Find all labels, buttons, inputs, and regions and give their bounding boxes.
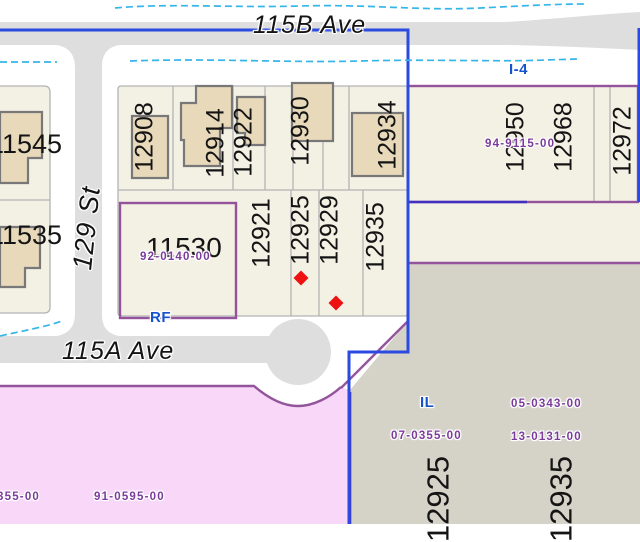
road-cul-de-sac-bulb bbox=[265, 319, 331, 385]
parcel-label-12921: 12921 bbox=[250, 198, 275, 268]
zone-label-rf: RF bbox=[150, 310, 171, 325]
permit-label-05-0343-00: 05-0343-00 bbox=[511, 399, 582, 411]
parcel-label-12972: 12972 bbox=[611, 106, 636, 176]
parcel-label-12925-industrial: 12925 bbox=[423, 456, 454, 542]
permit-label-92-0140-00: 92-0140-00 bbox=[140, 252, 211, 264]
permit-label-94-9115-00: 94-9115-00 bbox=[485, 139, 555, 151]
parcel-label-12929: 12929 bbox=[318, 195, 343, 265]
zone-label-i4: I-4 bbox=[509, 62, 528, 77]
parcel-label-12934: 12934 bbox=[376, 100, 401, 170]
map-viewport[interactable]: 115B Ave 115A Ave 129 St I-4 RF IL 11545… bbox=[0, 0, 640, 524]
parcel-label-12914: 12914 bbox=[204, 108, 229, 178]
parcel-label-12968: 12968 bbox=[552, 102, 577, 172]
parcel-label-11545: 11545 bbox=[0, 131, 62, 158]
parcel-label-12935-industrial: 12935 bbox=[546, 456, 577, 542]
parcel-label-12908: 12908 bbox=[133, 102, 158, 172]
parcel-label-12950: 12950 bbox=[504, 102, 529, 172]
permit-label-07-0355-00: 07-0355-00 bbox=[391, 431, 462, 443]
permit-label-355-00: 355-00 bbox=[0, 492, 40, 504]
parcel-label-12925: 12925 bbox=[289, 195, 314, 265]
parcel-label-12922: 12922 bbox=[232, 107, 257, 177]
parcel-label-12930: 12930 bbox=[289, 96, 314, 166]
parcel-label-11535: 11535 bbox=[0, 222, 62, 249]
zone-label-il: IL bbox=[420, 395, 434, 410]
permit-label-13-0131-00: 13-0131-00 bbox=[511, 432, 582, 444]
street-label-115b-ave: 115B Ave bbox=[253, 13, 366, 38]
parcel-strip-east[interactable] bbox=[408, 202, 640, 263]
permit-label-91-0595-00: 91-0595-00 bbox=[94, 492, 165, 504]
street-label-115a-ave: 115A Ave bbox=[62, 339, 174, 364]
parcel-label-12935: 12935 bbox=[364, 202, 389, 272]
